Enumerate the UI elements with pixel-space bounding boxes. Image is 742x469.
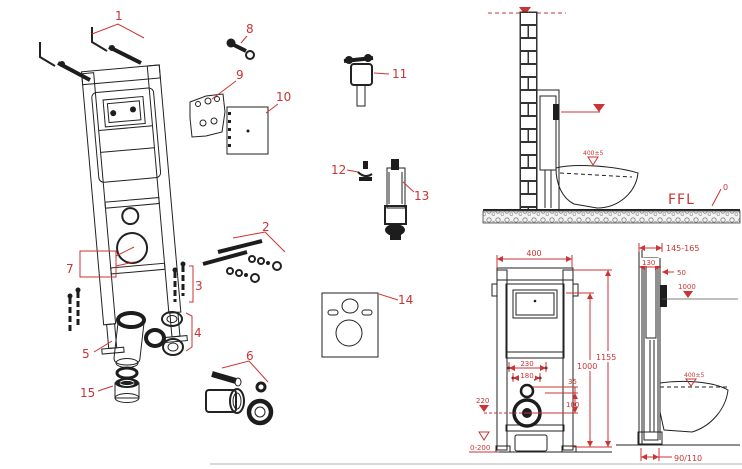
installation-side-view: 400±5 FFL 0 <box>483 7 740 223</box>
dim-plate-offset: 50 <box>677 269 686 277</box>
callout-2: 2 <box>262 220 270 234</box>
dim-width: 400 <box>526 249 541 258</box>
callout-6: 6 <box>246 349 254 363</box>
callout-3: 3 <box>195 279 203 293</box>
callout-14: 14 <box>398 293 413 307</box>
callout-11: 11 <box>392 67 407 81</box>
part-pipe-connectors: 4 <box>146 312 202 355</box>
drawing-canvas: 1 7 8 9 <box>0 0 742 469</box>
callout-4: 4 <box>194 326 202 340</box>
flush-plate-side <box>553 104 559 120</box>
callout-9: 9 <box>236 68 244 82</box>
flush-plate-pointer <box>593 104 605 112</box>
ffl-label: FFL <box>668 192 695 208</box>
exploded-view: 1 7 8 9 <box>40 9 429 423</box>
dim-outlet-height: 220 <box>476 397 489 405</box>
floor-section <box>483 211 740 223</box>
callout-7: 7 <box>66 262 74 276</box>
dim-plate-height: 1000 <box>678 283 696 291</box>
dim-offset-100: 100 <box>566 401 579 409</box>
seat-height-label-detail: 400±5 <box>684 372 704 379</box>
cistern-side <box>646 262 656 338</box>
toilet-bowl-side <box>556 166 638 208</box>
dim-bracket-width: 230 <box>520 360 533 368</box>
dim-outlet-diameter: 90/110 <box>674 454 702 463</box>
part-elbow-pipe: 5 <box>82 313 144 378</box>
seat-height-label-top: 400±5 <box>583 150 603 157</box>
part-mounting-plate: 9 <box>190 68 244 137</box>
part-clip: 12 <box>331 161 372 181</box>
callout-13: 13 <box>414 189 429 203</box>
part-plate-box: 10 <box>227 90 291 154</box>
dim-bolt-width: 180 <box>520 372 533 380</box>
mounting-frame <box>78 65 188 354</box>
part-flush-valve: 13 <box>385 159 429 240</box>
callout-8: 8 <box>246 22 254 36</box>
callout-12: 12 <box>331 163 346 177</box>
part-inlet-pipe-set: 6 <box>206 349 271 423</box>
callout-5: 5 <box>82 347 90 361</box>
dim-depth-range: 145-165 <box>666 244 699 253</box>
part-wall-brackets: 1 <box>40 9 144 80</box>
front-dimension-view: 400 1155 1000 230 180 35 100 220 0-200 <box>469 249 620 452</box>
toilet-bowl-detail <box>660 381 728 432</box>
part-fill-valve: 11 <box>344 54 407 106</box>
dim-total-height: 1155 <box>596 353 616 362</box>
dim-flush-height: 1000 <box>577 362 597 371</box>
callout-1: 1 <box>115 9 123 23</box>
dim-adjust-range: 0-200 <box>470 444 490 452</box>
dim-offset-35: 35 <box>568 378 577 386</box>
technical-drawing-page: 1 7 8 9 <box>0 0 742 469</box>
dim-depth-130: 130 <box>642 259 655 267</box>
part-screw-nut: 8 <box>227 22 255 59</box>
part-seal-bush: 15 <box>80 378 139 403</box>
callout-10: 10 <box>276 90 291 104</box>
side-dimension-view: 145-165 130 50 1000 400±5 90/110 <box>616 243 740 463</box>
ffl-zero-label: 0 <box>723 183 728 192</box>
inlet-port-front <box>521 385 533 397</box>
part-bolt-set: 2 <box>203 220 285 282</box>
part-insulation-mat: 14 <box>322 293 413 357</box>
callout-15: 15 <box>80 386 95 400</box>
wall-section <box>520 12 537 212</box>
flush-plate-detail <box>660 285 667 307</box>
